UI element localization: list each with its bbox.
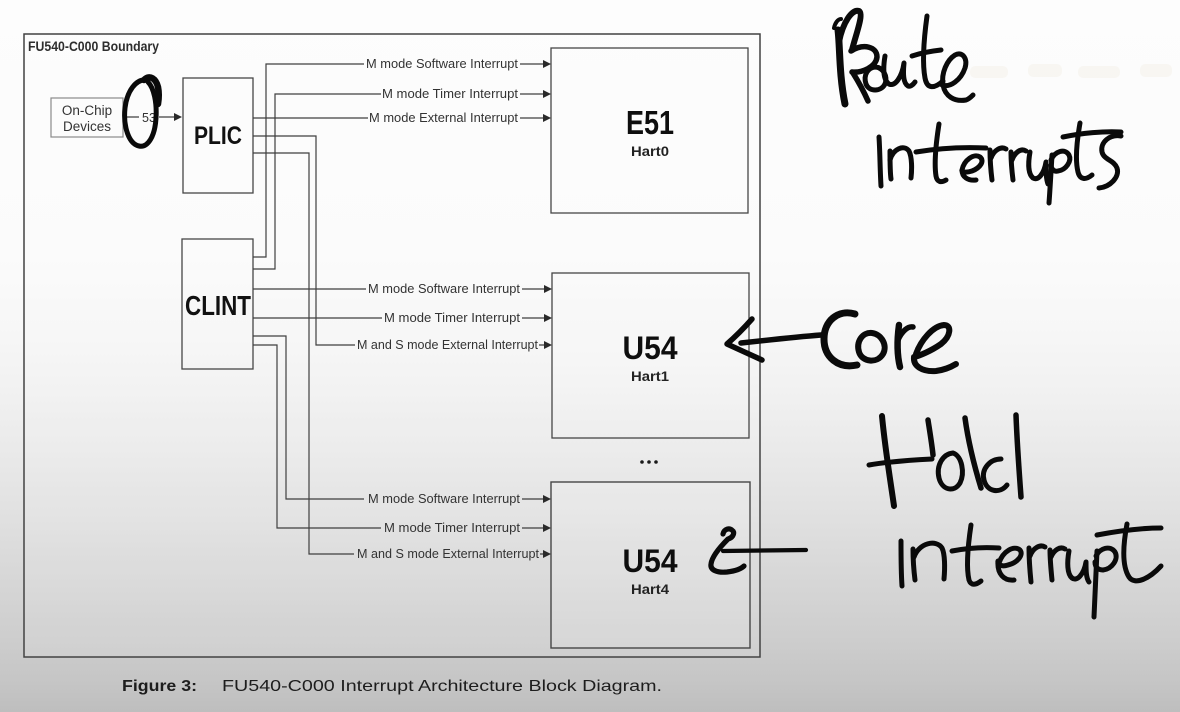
svg-text:On-Chip: On-Chip (62, 103, 112, 118)
svg-text:M mode Software Interrupt: M mode Software Interrupt (366, 57, 519, 71)
svg-text:E51: E51 (626, 104, 674, 141)
svg-text:Hart1: Hart1 (631, 368, 669, 384)
svg-text:FU540-C000 Boundary: FU540-C000 Boundary (28, 39, 159, 54)
svg-text:CLINT: CLINT (185, 290, 251, 321)
svg-text:PLIC: PLIC (194, 122, 242, 150)
svg-text:Hart4: Hart4 (631, 581, 669, 597)
svg-text:M mode Timer Interrupt: M mode Timer Interrupt (384, 521, 521, 535)
svg-text:M and S mode External Interrup: M and S mode External Interrupt (357, 338, 539, 352)
svg-text:M and S mode External Interrup: M and S mode External Interrupt (357, 547, 540, 561)
svg-text:U54: U54 (623, 330, 678, 366)
svg-text:M mode External Interrupt: M mode External Interrupt (369, 111, 519, 125)
svg-text:Devices: Devices (63, 119, 111, 134)
svg-text:M mode Timer Interrupt: M mode Timer Interrupt (384, 311, 521, 325)
svg-text:Hart0: Hart0 (631, 143, 669, 159)
svg-text:M mode Software Interrupt: M mode Software Interrupt (368, 282, 521, 296)
svg-text:U54: U54 (623, 543, 678, 579)
svg-text:Figure 3:: Figure 3: (122, 678, 197, 695)
svg-text:M mode Timer Interrupt: M mode Timer Interrupt (382, 87, 519, 101)
svg-text:FU540-C000 Interrupt Architect: FU540-C000 Interrupt Architecture Block … (222, 678, 662, 695)
svg-text:M mode Software Interrupt: M mode Software Interrupt (368, 492, 521, 506)
